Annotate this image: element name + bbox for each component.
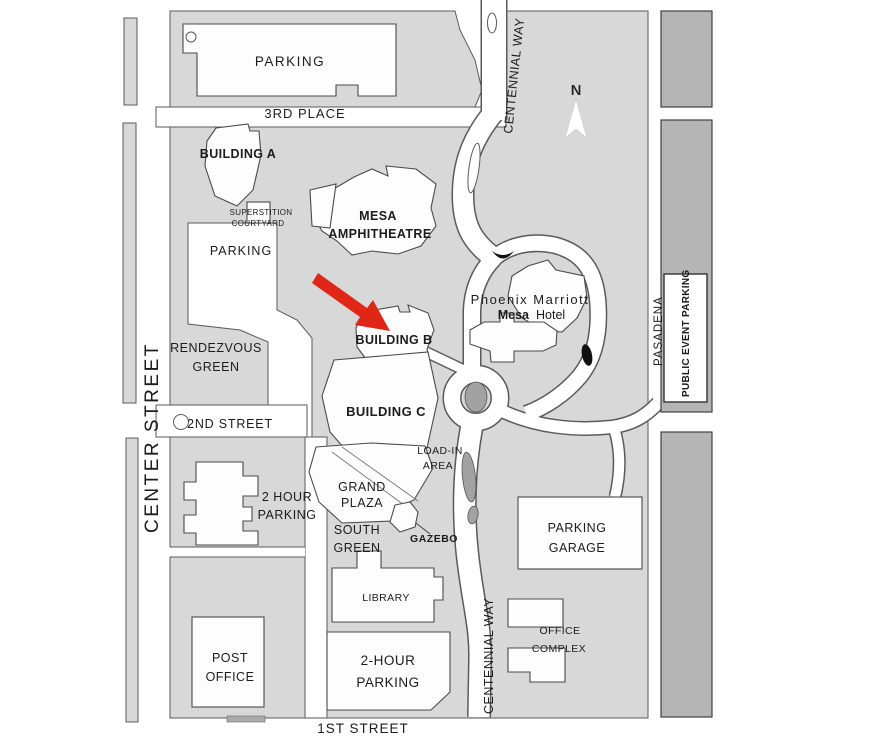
label-hotel-2a: Mesa: [498, 308, 530, 322]
label-load-in-2: AREA: [423, 460, 453, 472]
roundabout-center: [465, 382, 487, 412]
compass-n-label: N: [571, 82, 582, 99]
label-garage-1: PARKING: [548, 521, 607, 535]
label-grand-2: PLAZA: [341, 496, 383, 510]
label-center-street: CENTER STREET: [142, 342, 163, 533]
label-load-in-1: LOAD-IN: [417, 445, 462, 457]
campus-map-page: N 3RD PLACE 2ND STREET 1ST STREET CENTER…: [0, 0, 883, 740]
label-building-a: BUILDING A: [200, 147, 276, 161]
label-hotel-1: Phoenix Marriott: [471, 292, 590, 307]
label-two-hour-west-1: 2 HOUR: [262, 490, 312, 504]
street-gap-west: [168, 547, 305, 557]
label-two-hour-south-2: PARKING: [356, 675, 419, 690]
label-pasadena: PASADENA: [653, 296, 665, 366]
label-two-hour-west-2: PARKING: [258, 508, 317, 522]
label-parking-a: PARKING: [210, 244, 272, 258]
label-post-1: POST: [212, 651, 248, 665]
dark-block-1: [661, 11, 712, 107]
label-amphitheatre-2: AMPHITHEATRE: [328, 227, 431, 241]
label-parking-top: PARKING: [255, 54, 325, 69]
label-office-2: COMPLEX: [532, 643, 586, 655]
label-hotel-2b: Hotel: [536, 308, 565, 322]
label-office-1: OFFICE: [540, 625, 581, 637]
campus-map: N 3RD PLACE 2ND STREET 1ST STREET CENTER…: [0, 0, 883, 740]
label-centennial-way-bottom: CENTENNIAL WAY: [482, 598, 496, 714]
label-grand-1: GRAND: [338, 480, 386, 494]
center-street-median-top: [124, 18, 137, 105]
label-superstition-1: SUPERSTITION: [230, 208, 293, 217]
label-public-event-parking: PUBLIC EVENT PARKING: [681, 270, 692, 398]
label-amphitheatre-1: MESA: [359, 209, 397, 223]
office-complex-north-shape: [508, 599, 563, 627]
label-south-1: SOUTH: [334, 523, 380, 537]
label-rendezvous-1: RENDEZVOUS: [170, 341, 262, 355]
label-two-hour-south-1: 2-HOUR: [361, 653, 416, 668]
center-street-median-mid: [123, 123, 136, 403]
center-street-median-bottom: [126, 438, 138, 722]
label-gazebo: GAZEBO: [410, 533, 458, 545]
label-garage-2: GARAGE: [549, 541, 606, 555]
label-rendezvous-2: GREEN: [193, 360, 240, 374]
dark-block-3: [661, 432, 712, 717]
label-south-2: GREEN: [334, 541, 381, 555]
label-building-c: BUILDING C: [346, 404, 426, 419]
label-library: LIBRARY: [362, 592, 410, 604]
curb-strip-bottom: [227, 716, 265, 722]
label-1st-street: 1ST STREET: [317, 721, 409, 736]
label-3rd-place: 3RD PLACE: [264, 106, 345, 121]
label-building-b: BUILDING B: [356, 333, 433, 347]
label-superstition-2: COURTYARD: [232, 219, 285, 228]
two-hour-south-lot: [327, 632, 450, 710]
label-2nd-street: 2ND STREET: [187, 417, 273, 431]
road-island-top: [488, 13, 497, 33]
lot-circle-marker: [186, 32, 196, 42]
label-post-2: OFFICE: [206, 670, 255, 684]
